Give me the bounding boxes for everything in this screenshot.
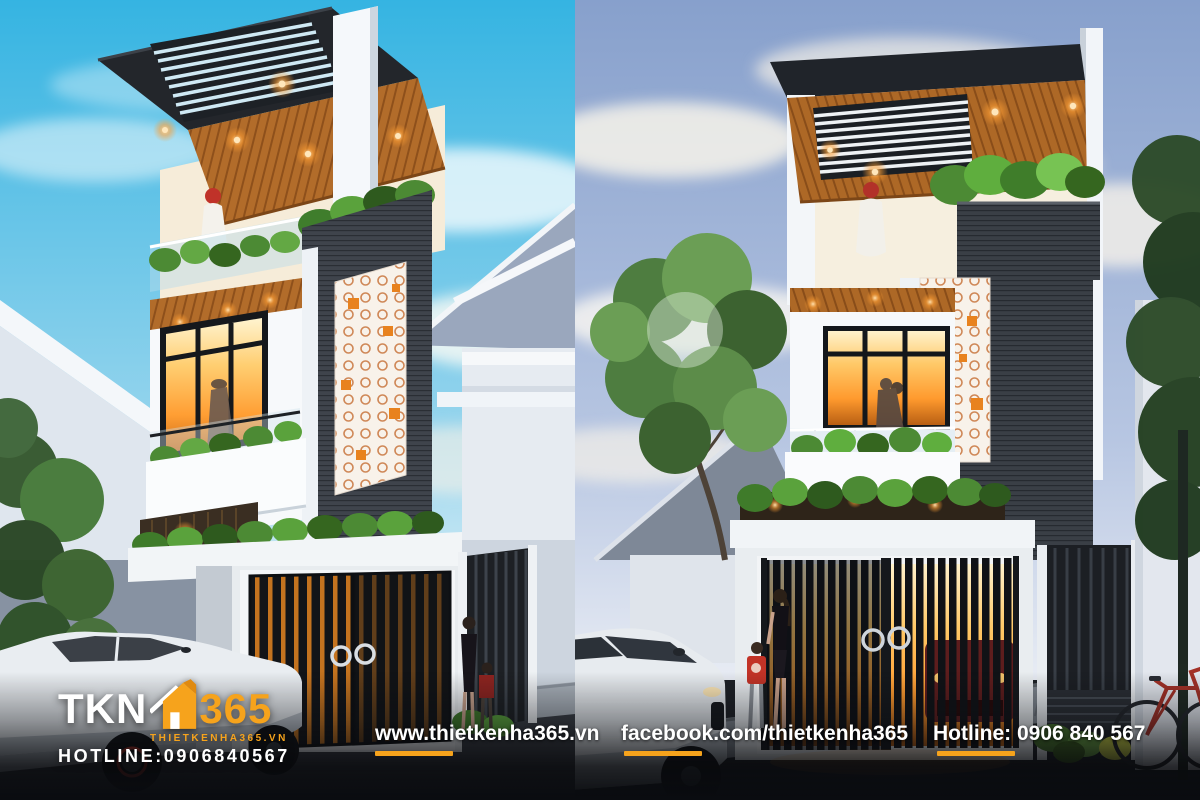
footer-facebook: facebook.com/thietkenha365 bbox=[621, 722, 908, 746]
floor2-wood-band bbox=[790, 288, 955, 314]
footer-hotline: Hotline: 0906 840 567 bbox=[933, 722, 1145, 746]
rooftop-planter bbox=[957, 202, 1100, 280]
footer-facebook-underline bbox=[624, 751, 702, 756]
logo-text-365: 365 bbox=[199, 688, 272, 730]
brand-watermark: TKN 365 THIETKENHA365.VN HOTLINE:0906840… bbox=[58, 672, 328, 767]
brand-logo: TKN 365 bbox=[58, 672, 328, 730]
footer-hotline-underline bbox=[937, 751, 1015, 756]
presentation-canvas: TKN 365 THIETKENHA365.VN HOTLINE:0906840… bbox=[0, 0, 1200, 800]
floor2-window bbox=[823, 326, 950, 430]
logo-website: THIETKENHA365.VN bbox=[150, 733, 328, 744]
breeze-block-panel bbox=[335, 262, 406, 495]
house-logo-icon bbox=[150, 676, 198, 732]
logo-hotline: HOTLINE:0906840567 bbox=[58, 746, 328, 767]
footer-website: www.thietkenha365.vn bbox=[375, 722, 599, 746]
footer-website-underline bbox=[375, 751, 453, 756]
logo-text-tkn: TKN bbox=[58, 688, 147, 730]
